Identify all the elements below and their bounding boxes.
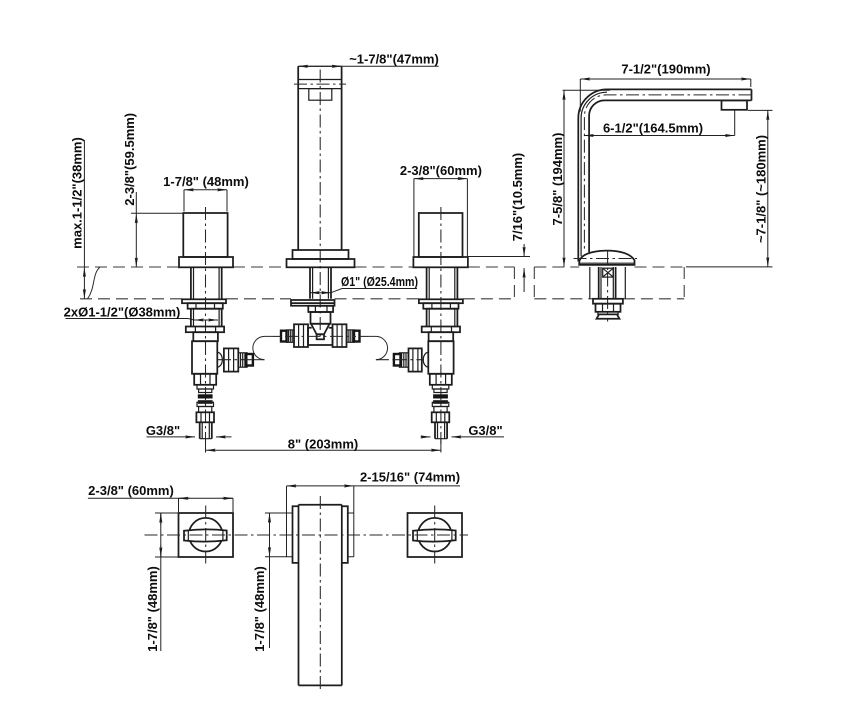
svg-text:8" (203mm): 8" (203mm) xyxy=(288,436,358,451)
svg-text:1-7/8" (48mm): 1-7/8" (48mm) xyxy=(145,566,160,652)
svg-text:G3/8": G3/8" xyxy=(468,423,502,438)
svg-text:7/16"(10.5mm): 7/16"(10.5mm) xyxy=(510,153,525,242)
svg-text:max.1-1/2"(38mm): max.1-1/2"(38mm) xyxy=(70,137,85,249)
svg-text:7-5/8" (194mm): 7-5/8" (194mm) xyxy=(550,133,565,226)
svg-text:G3/8": G3/8" xyxy=(146,423,180,438)
svg-text:~1-7/8"(47mm): ~1-7/8"(47mm) xyxy=(349,52,439,67)
svg-text:7-1/2"(190mm): 7-1/2"(190mm) xyxy=(621,61,710,76)
svg-text:1-7/8" (48mm): 1-7/8" (48mm) xyxy=(252,566,267,652)
svg-text:2-15/16" (74mm): 2-15/16" (74mm) xyxy=(360,469,460,484)
svg-text:2-3/8"(59.5mm): 2-3/8"(59.5mm) xyxy=(122,113,137,206)
svg-text:1-7/8" (48mm): 1-7/8" (48mm) xyxy=(163,174,249,189)
svg-text:~7-1/8" (~180mm): ~7-1/8" (~180mm) xyxy=(754,135,769,243)
svg-text:6-1/2"(164.5mm): 6-1/2"(164.5mm) xyxy=(603,121,703,136)
svg-text:2-3/8" (60mm): 2-3/8" (60mm) xyxy=(88,483,174,498)
svg-text:2xØ1-1/2"(Ø38mm): 2xØ1-1/2"(Ø38mm) xyxy=(64,305,181,320)
svg-text:2-3/8"(60mm): 2-3/8"(60mm) xyxy=(400,163,482,178)
svg-text:Ø1" (Ø25.4mm): Ø1" (Ø25.4mm) xyxy=(341,274,418,289)
